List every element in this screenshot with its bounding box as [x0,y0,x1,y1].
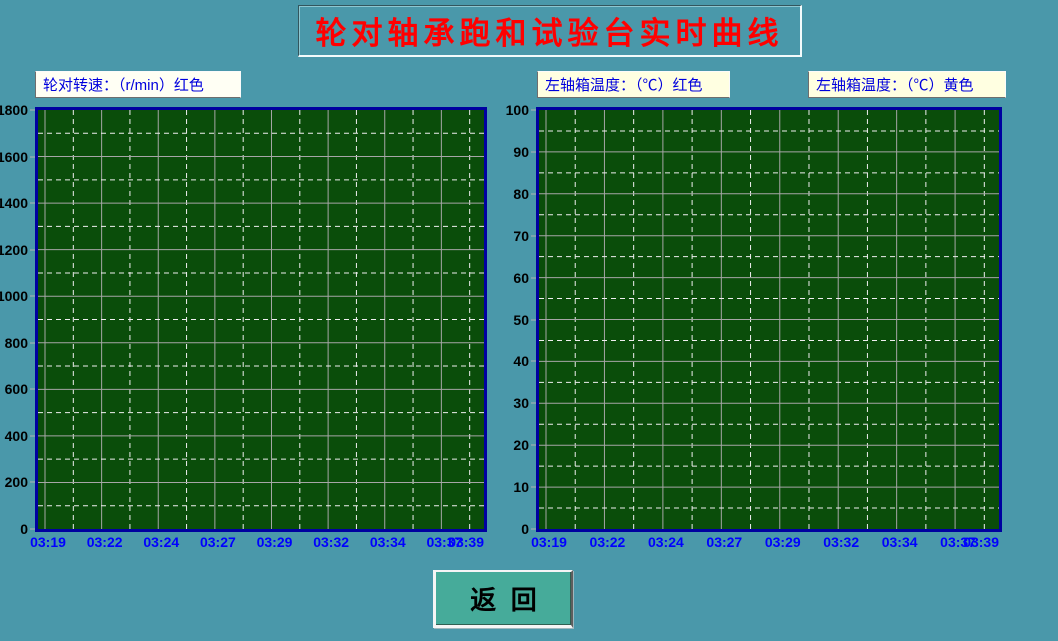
x-tick-label: 03:29 [765,535,801,550]
x-tick-label: 03:32 [823,535,859,550]
y-tick-label: 70 [513,229,529,243]
temp-x-axis: 03:1903:2203:2403:2703:2903:3203:3403:37… [539,535,999,553]
x-tick-label: 03:34 [882,535,918,550]
y-tick-label: 10 [513,480,529,494]
speed-y-axis: 180016001400120010008006004002000 [0,110,35,529]
y-tick-label: 0 [521,522,529,536]
y-tick-label: 40 [513,354,529,368]
speed-chart-plot [35,107,487,532]
y-tick-label: 200 [5,475,28,489]
x-tick-label: 03:22 [87,535,123,550]
x-tick-label: 03:24 [143,535,179,550]
title-panel: 轮对轴承跑和试验台实时曲线 [298,5,802,57]
speed-legend: 轮对转速：（r/min）红色 [35,71,241,98]
y-tick-label: 1400 [0,196,28,210]
x-tick-label: 03:19 [30,535,66,550]
y-tick-label: 1200 [0,243,28,257]
y-tick-label: 1800 [0,103,28,117]
x-tick-label: 03:34 [370,535,406,550]
y-tick-label: 600 [5,382,28,396]
grid [38,110,484,529]
y-tick-label: 1600 [0,150,28,164]
grid [539,110,999,529]
speed-x-axis: 03:1903:2203:2403:2703:2903:3203:3403:37… [38,535,484,553]
temp-chart-plot [536,107,1002,532]
temp-red-legend: 左轴箱温度：（℃）红色 [537,71,730,98]
y-tick-label: 50 [513,313,529,327]
y-tick-label: 60 [513,271,529,285]
x-tick-label: 03:29 [257,535,293,550]
x-tick-label: 03:22 [590,535,626,550]
x-tick-label: 03:27 [200,535,236,550]
y-tick-label: 30 [513,396,529,410]
y-tick-label: 20 [513,438,529,452]
x-tick-label: 03:39 [448,535,484,550]
x-tick-label: 03:39 [963,535,999,550]
x-tick-label: 03:24 [648,535,684,550]
x-tick-label: 03:19 [531,535,567,550]
x-tick-label: 03:32 [313,535,349,550]
back-button[interactable]: 返 回 [433,570,573,628]
y-tick-label: 90 [513,145,529,159]
temp-y-axis: 1009080706050403020100 [498,110,536,529]
y-tick-label: 400 [5,429,28,443]
x-tick-label: 03:27 [706,535,742,550]
page-title: 轮对轴承跑和试验台实时曲线 [316,8,784,53]
y-tick-label: 100 [506,103,529,117]
y-tick-label: 1000 [0,289,28,303]
y-tick-label: 0 [20,522,28,536]
hmi-screen: 轮对轴承跑和试验台实时曲线 轮对转速：（r/min）红色 左轴箱温度：（℃）红色… [0,0,1058,641]
temp-yellow-legend: 左轴箱温度：（℃）黄色 [808,71,1006,98]
y-tick-label: 80 [513,187,529,201]
y-tick-label: 800 [5,336,28,350]
